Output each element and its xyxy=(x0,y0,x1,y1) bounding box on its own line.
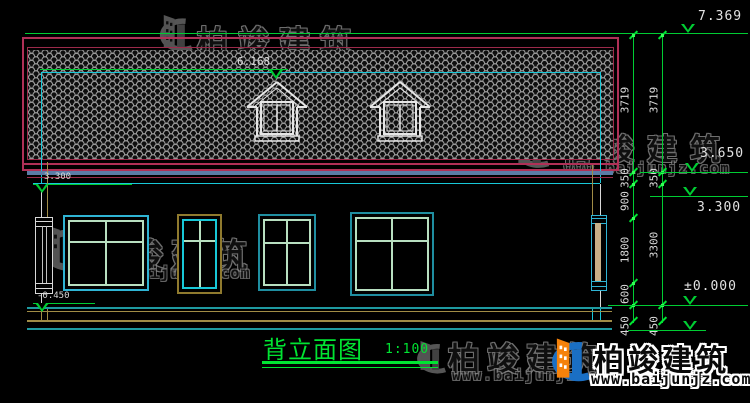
wall-edge-right xyxy=(600,72,601,183)
brand-url-text: www.baijunjz.com xyxy=(591,370,750,388)
roof-border xyxy=(22,163,618,165)
level-value-eave: 3.650 xyxy=(700,146,744,161)
corner-pilaster-left xyxy=(35,217,53,294)
level-value-story2-left: 3.300 xyxy=(44,172,71,182)
dormer-window xyxy=(246,80,308,143)
roof-border xyxy=(27,47,613,48)
level-triangle-icon xyxy=(269,70,283,79)
level-triangle-icon xyxy=(683,321,697,330)
roof-border xyxy=(27,47,28,160)
pilaster-shaft xyxy=(595,223,601,281)
level-value-base-left: -0.450 xyxy=(37,291,70,301)
eave-fascia xyxy=(27,171,613,175)
elevation-drawing-canvas: 柏竣建筑 www.baijunjz.com 柏竣建筑 www.baijunjz.… xyxy=(0,0,750,403)
brand-logo-icon xyxy=(532,335,596,399)
ground-line xyxy=(27,311,612,312)
level-triangle-icon xyxy=(683,296,697,305)
title-underline xyxy=(262,367,438,368)
level-line xyxy=(640,172,748,173)
ridge-line xyxy=(41,72,600,73)
title-underline xyxy=(262,361,438,364)
ground-line xyxy=(27,320,612,322)
dimension-line xyxy=(662,33,663,323)
dim-node xyxy=(661,34,664,37)
wall-edge-left xyxy=(41,72,42,183)
level-line xyxy=(628,330,706,331)
window-transom xyxy=(184,240,215,242)
pilaster-cap xyxy=(592,281,606,287)
window xyxy=(177,214,222,294)
window xyxy=(258,214,316,291)
roof-border xyxy=(22,37,24,171)
window-mullion xyxy=(391,219,393,289)
window-transom xyxy=(357,240,427,242)
level-value-roof-top: 7.369 xyxy=(698,9,742,24)
level-line xyxy=(650,196,748,197)
level-triangle-icon xyxy=(683,187,697,196)
corner-pilaster-right xyxy=(591,215,607,291)
window-transom xyxy=(70,241,142,243)
dim-node xyxy=(632,217,635,220)
drawing-title: 背立面图 xyxy=(263,330,363,365)
roof-tile-hatch xyxy=(27,50,613,159)
dim-node xyxy=(661,183,664,186)
level-line xyxy=(25,33,748,34)
level-line xyxy=(608,305,748,306)
drawing-scale: 1:100 xyxy=(385,342,429,357)
level-triangle-icon xyxy=(685,163,699,172)
window-mullion xyxy=(286,221,288,284)
roof-border xyxy=(27,159,613,160)
roof-border xyxy=(613,47,614,160)
level-triangle-icon xyxy=(35,303,49,312)
dormer-window xyxy=(369,80,431,143)
level-value-story2: 3.300 xyxy=(697,200,741,215)
level-value-ridge: 6.168 xyxy=(237,55,270,68)
roof-border xyxy=(22,37,618,39)
level-value-zero: ±0.000 xyxy=(684,279,737,294)
window xyxy=(63,215,149,291)
dim-node xyxy=(632,282,635,285)
window-mullion xyxy=(199,221,201,287)
window-transom xyxy=(265,242,309,244)
level-triangle-icon xyxy=(681,24,695,33)
eave-trim-line xyxy=(27,177,613,178)
dim-node xyxy=(632,183,635,186)
pilaster-cap xyxy=(36,283,52,289)
dim-node xyxy=(632,171,635,174)
level-line-ridge xyxy=(40,69,288,70)
window xyxy=(350,212,434,296)
window-mullion xyxy=(105,222,107,284)
level-triangle-icon xyxy=(35,184,49,193)
corner-trim-right xyxy=(592,165,593,215)
pilaster-shaft xyxy=(42,226,47,283)
dim-node xyxy=(632,34,635,37)
ground-line xyxy=(27,307,612,309)
